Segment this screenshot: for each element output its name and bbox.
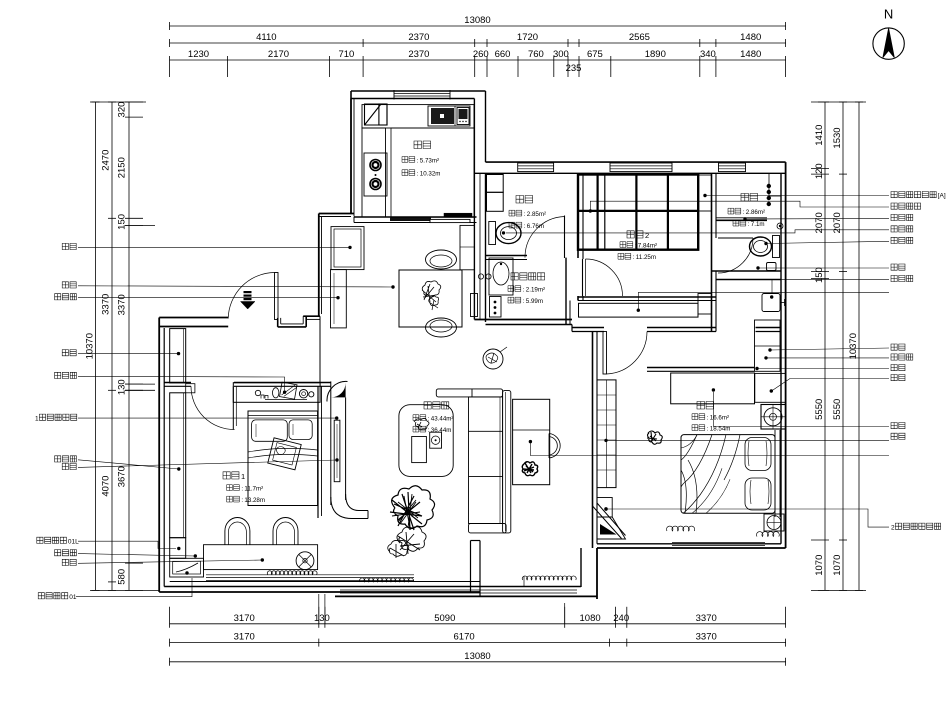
svg-text:1890: 1890 xyxy=(645,49,666,60)
svg-text:340: 340 xyxy=(700,49,716,60)
svg-text:1480: 1480 xyxy=(740,49,761,60)
svg-text:580: 580 xyxy=(117,569,128,585)
svg-text:2170: 2170 xyxy=(268,49,289,60)
svg-text::: : xyxy=(524,211,526,218)
svg-text:11.7m²: 11.7m² xyxy=(244,486,263,493)
svg-text:16.6m²: 16.6m² xyxy=(710,415,729,422)
svg-text::: : xyxy=(428,427,430,434)
svg-text:6170: 6170 xyxy=(454,632,475,643)
svg-text:2370: 2370 xyxy=(408,49,429,60)
svg-text:300: 300 xyxy=(553,49,569,60)
svg-text:2.86m²: 2.86m² xyxy=(746,209,765,216)
svg-text:130: 130 xyxy=(314,613,330,624)
svg-text:2.19m²: 2.19m² xyxy=(526,287,545,294)
svg-text:5550: 5550 xyxy=(832,399,843,420)
svg-text:1: 1 xyxy=(35,415,39,422)
svg-text::: : xyxy=(635,243,637,250)
svg-text:1: 1 xyxy=(241,472,245,481)
svg-text:2: 2 xyxy=(645,231,649,240)
svg-text:5.99m: 5.99m xyxy=(526,298,543,305)
svg-text:320: 320 xyxy=(117,102,128,118)
svg-text::: : xyxy=(707,415,709,422)
svg-text:2470: 2470 xyxy=(101,150,112,171)
svg-text:2565: 2565 xyxy=(629,32,650,43)
svg-text:5550: 5550 xyxy=(814,399,825,420)
svg-text:760: 760 xyxy=(528,49,544,60)
svg-text:43.44m²: 43.44m² xyxy=(431,416,454,423)
svg-text:3370: 3370 xyxy=(696,613,717,624)
svg-text::: : xyxy=(417,171,419,178)
svg-text::: : xyxy=(428,416,430,423)
svg-text:710: 710 xyxy=(338,49,354,60)
svg-text:11.25m: 11.25m xyxy=(636,254,656,261)
svg-text::: : xyxy=(633,254,635,261)
svg-text:[A]: [A] xyxy=(938,193,946,200)
svg-text:2.85m²: 2.85m² xyxy=(527,211,546,218)
svg-text:13.28m: 13.28m xyxy=(244,497,265,504)
svg-text::: : xyxy=(748,221,750,228)
svg-text:N: N xyxy=(884,7,893,22)
svg-text::: : xyxy=(241,486,243,493)
svg-text:1070: 1070 xyxy=(814,555,825,576)
svg-text:3370: 3370 xyxy=(696,632,717,643)
svg-text:1080: 1080 xyxy=(580,613,601,624)
svg-text:13080: 13080 xyxy=(464,15,490,26)
svg-text:1070: 1070 xyxy=(832,555,843,576)
svg-text:1480: 1480 xyxy=(740,32,761,43)
svg-text:10.32m: 10.32m xyxy=(420,171,441,178)
svg-text:36.44m: 36.44m xyxy=(431,427,452,434)
svg-text:235: 235 xyxy=(566,63,582,74)
svg-text:150: 150 xyxy=(814,267,825,283)
svg-text:2070: 2070 xyxy=(832,212,843,233)
svg-text:6.76m: 6.76m xyxy=(527,223,544,230)
svg-text::: : xyxy=(417,157,419,164)
svg-text:7.1m: 7.1m xyxy=(751,221,765,228)
svg-text:675: 675 xyxy=(587,49,603,60)
svg-text:1720: 1720 xyxy=(517,32,538,43)
svg-text:01: 01 xyxy=(69,594,77,601)
svg-text:5090: 5090 xyxy=(434,613,455,624)
svg-text:4070: 4070 xyxy=(101,476,112,497)
svg-text:3170: 3170 xyxy=(234,613,255,624)
svg-text:10370: 10370 xyxy=(85,333,96,359)
svg-text:4110: 4110 xyxy=(256,32,276,43)
svg-text::: : xyxy=(524,223,526,230)
svg-text:3170: 3170 xyxy=(234,632,255,643)
svg-text:10370: 10370 xyxy=(848,333,859,359)
svg-text:1230: 1230 xyxy=(188,49,209,60)
svg-text:3670: 3670 xyxy=(117,466,128,487)
svg-text:2370: 2370 xyxy=(408,32,429,43)
svg-text:2150: 2150 xyxy=(117,157,128,178)
svg-text:2070: 2070 xyxy=(814,212,825,233)
svg-text:1530: 1530 xyxy=(832,127,843,148)
svg-text:130: 130 xyxy=(117,379,128,395)
svg-text:5.73m²: 5.73m² xyxy=(420,157,439,164)
svg-text:1410: 1410 xyxy=(814,125,825,146)
svg-text:3370: 3370 xyxy=(101,294,112,315)
svg-text:7.84m²: 7.84m² xyxy=(638,243,657,250)
svg-text:240: 240 xyxy=(613,613,629,624)
svg-text:13080: 13080 xyxy=(464,651,490,662)
svg-text::: : xyxy=(707,426,709,433)
svg-text::: : xyxy=(743,209,745,216)
svg-text:260: 260 xyxy=(473,49,489,60)
svg-text::: : xyxy=(523,287,525,294)
svg-text:150: 150 xyxy=(117,214,128,230)
svg-text::: : xyxy=(523,298,525,305)
svg-text:120: 120 xyxy=(814,163,825,179)
svg-text:660: 660 xyxy=(495,49,511,60)
svg-text::: : xyxy=(241,497,243,504)
svg-text:2: 2 xyxy=(891,524,895,531)
svg-text:01L: 01L xyxy=(68,538,79,545)
